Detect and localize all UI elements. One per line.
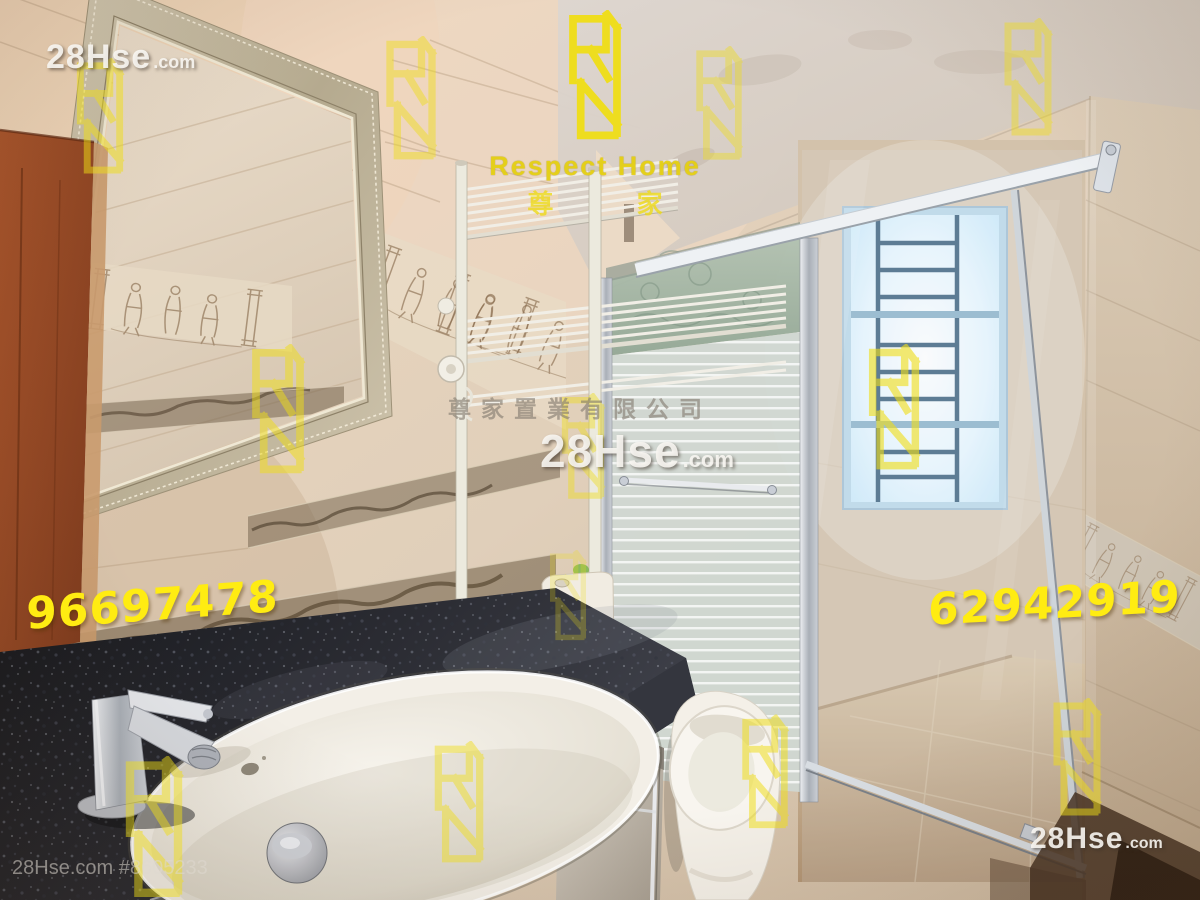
- bathroom-listing-photo: 28Hse.com Respect Home 尊 家 尊家置業有限公司 28Hs…: [0, 0, 1200, 900]
- bathroom-scene: [0, 0, 1200, 900]
